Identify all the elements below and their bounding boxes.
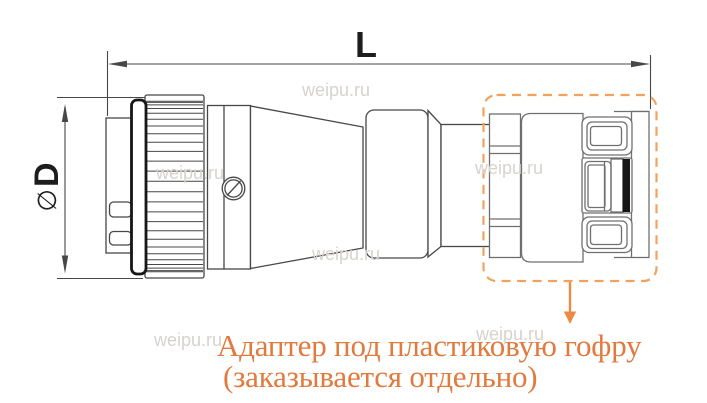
adapter-body bbox=[522, 114, 584, 263]
adapter-end-cap bbox=[632, 112, 650, 258]
watermark: weipu.ru bbox=[475, 158, 543, 179]
latch-middle-black-bar bbox=[623, 159, 631, 212]
arrowhead-right-icon bbox=[631, 61, 650, 67]
length-dimension-label: L bbox=[355, 27, 377, 63]
watermark: weipu.ru bbox=[302, 80, 370, 101]
solder-contact-top bbox=[110, 202, 132, 217]
annotation-line1: Адаптер под пластиковую гофру bbox=[217, 329, 641, 362]
diameter-dimension-label: ∅ D bbox=[17, 157, 77, 217]
solder-contact-bottom bbox=[110, 232, 132, 246]
gasket-ring bbox=[132, 100, 147, 274]
diagram-canvas: weipu.ru weipu.ru weipu.ru weipu.ru weip… bbox=[0, 0, 707, 403]
watermark: weipu.ru bbox=[156, 163, 224, 184]
watermark: weipu.ru bbox=[154, 330, 222, 351]
diameter-letter: D bbox=[30, 162, 64, 187]
adapter-pointer-arrow bbox=[564, 282, 576, 324]
arrowhead-up-icon bbox=[62, 104, 68, 122]
adapter-sleeve bbox=[490, 114, 521, 258]
connector-body bbox=[106, 95, 490, 278]
diameter-symbol: ∅ bbox=[34, 189, 60, 212]
ribbed-coupling-cap bbox=[145, 95, 204, 278]
tail-taper bbox=[428, 111, 441, 258]
adapter bbox=[490, 112, 650, 263]
annotation-line2: (заказывается отдельно) bbox=[223, 360, 537, 393]
arrowhead-left-icon bbox=[108, 61, 127, 67]
watermark: weipu.ru bbox=[312, 244, 380, 265]
arrowhead-down-icon bbox=[62, 256, 68, 274]
knurled-nut-bg bbox=[366, 110, 428, 258]
callout-arrowhead-icon bbox=[564, 312, 576, 325]
